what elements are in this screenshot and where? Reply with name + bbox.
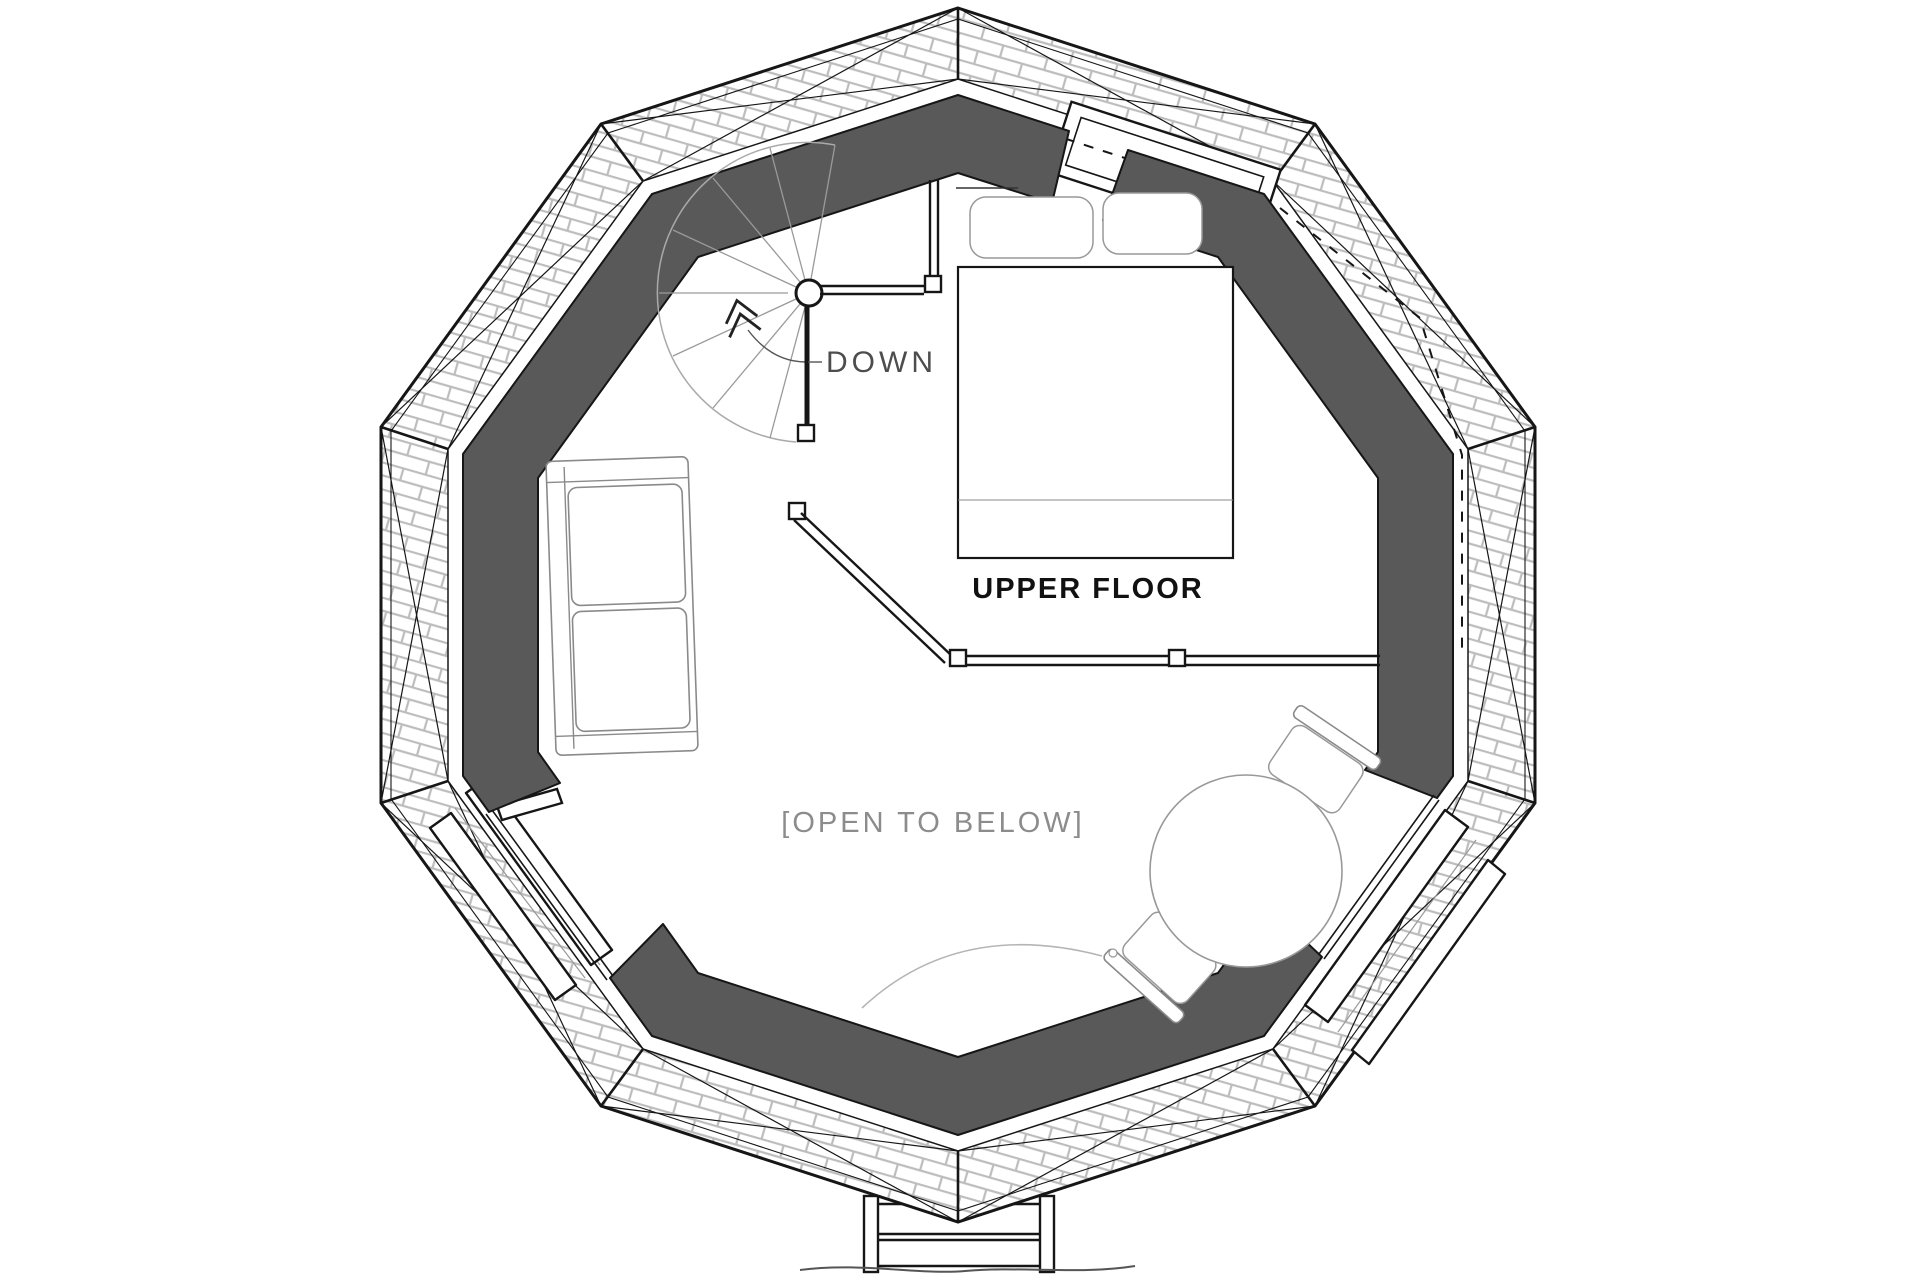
railing-post [1169,650,1185,666]
round-table [1150,775,1342,967]
down-label: DOWN [826,346,937,379]
sofa-cushion [572,608,690,732]
porch-post-right [1040,1196,1054,1272]
sofa [546,457,698,756]
porch-post-left [864,1196,878,1272]
floor-plan-page: DOWN UPPER FLOOR [OPEN TO BELOW] [0,0,1920,1280]
wall-corner-post [925,276,941,292]
railing-post [950,650,966,666]
bed [956,188,1233,558]
stair-gate-post-top [798,425,814,441]
floor-plan-canvas: DOWN UPPER FLOOR [OPEN TO BELOW] [0,0,1920,1280]
bed-mattress [958,267,1233,558]
sofa-cushion [568,484,686,606]
stair-center-post [796,280,822,306]
pillow-right [1103,193,1202,254]
upper-floor-label: UPPER FLOOR [972,573,1203,605]
lower-floor-door-swing [862,945,1117,1008]
open-to-below-label: [OPEN TO BELOW] [781,807,1084,839]
pillow-left [970,197,1093,258]
stair-gate-post-bottom [789,503,805,519]
